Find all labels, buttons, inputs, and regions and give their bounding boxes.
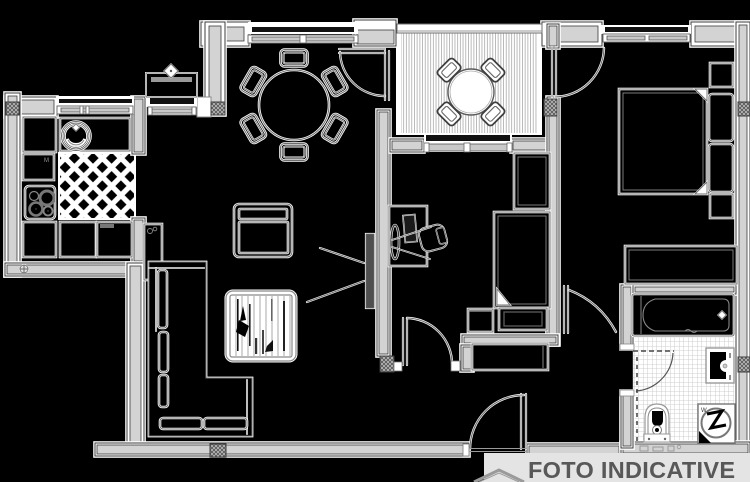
svg-text:M: M xyxy=(44,158,49,164)
svg-text:W: W xyxy=(701,408,707,414)
svg-text:FOTO INDICATIVE: FOTO INDICATIVE xyxy=(528,457,735,482)
